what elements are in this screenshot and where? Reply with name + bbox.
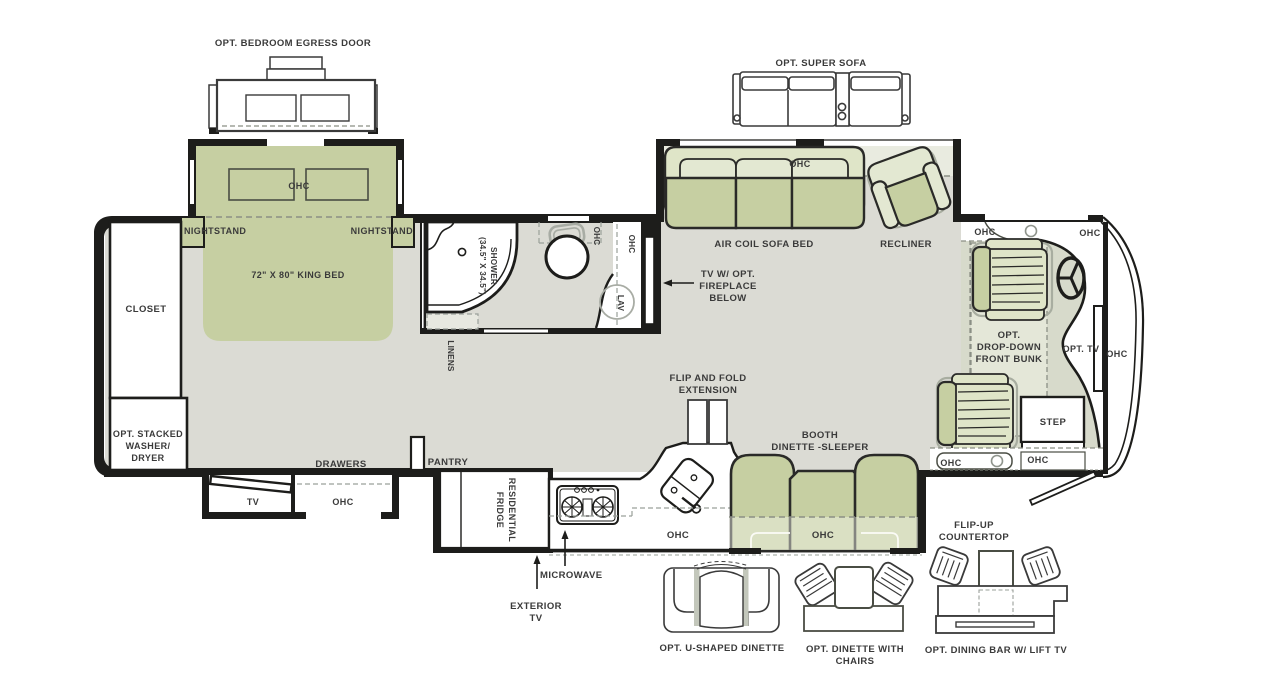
svg-text:FIREPLACE: FIREPLACE xyxy=(699,281,756,292)
svg-text:OPT. TV: OPT. TV xyxy=(1063,344,1100,354)
svg-text:AIR COIL SOFA BED: AIR COIL SOFA BED xyxy=(714,239,813,250)
svg-text:OHC: OHC xyxy=(1079,228,1100,238)
svg-text:DRAWERS: DRAWERS xyxy=(315,459,366,470)
svg-text:DINETTE -SLEEPER: DINETTE -SLEEPER xyxy=(771,442,868,453)
svg-text:OPT. STACKED: OPT. STACKED xyxy=(113,429,183,439)
svg-text:OPT. BEDROOM EGRESS DOOR: OPT. BEDROOM EGRESS DOOR xyxy=(215,38,371,49)
svg-text:OHC: OHC xyxy=(627,235,636,254)
svg-text:OPT.: OPT. xyxy=(998,330,1021,341)
svg-text:CLOSET: CLOSET xyxy=(126,304,167,315)
svg-text:OHC: OHC xyxy=(332,497,353,507)
svg-text:OHC: OHC xyxy=(592,227,601,246)
svg-text:DRYER: DRYER xyxy=(131,453,164,463)
svg-text:BELOW: BELOW xyxy=(709,293,746,304)
svg-text:EXTERIOR: EXTERIOR xyxy=(510,601,562,612)
svg-text:72" X 80" KING BED: 72" X 80" KING BED xyxy=(251,270,344,280)
svg-text:FLIP-UP: FLIP-UP xyxy=(954,520,994,531)
svg-text:NIGHTSTAND: NIGHTSTAND xyxy=(351,226,413,236)
svg-text:FRIDGE: FRIDGE xyxy=(495,492,505,528)
svg-text:LINENS: LINENS xyxy=(446,340,455,372)
svg-text:NIGHTSTAND: NIGHTSTAND xyxy=(184,226,246,236)
svg-text:OHC: OHC xyxy=(812,530,834,541)
svg-text:OHC: OHC xyxy=(667,530,689,541)
svg-text:PANTRY: PANTRY xyxy=(428,457,469,468)
svg-text:TV: TV xyxy=(530,613,543,624)
svg-text:FLIP AND FOLD: FLIP AND FOLD xyxy=(670,373,747,384)
svg-text:OPT. DINETTE WITH: OPT. DINETTE WITH xyxy=(806,644,904,655)
svg-text:TV: TV xyxy=(247,497,259,507)
svg-text:OPT. DINING BAR W/ LIFT TV: OPT. DINING BAR W/ LIFT TV xyxy=(925,645,1068,656)
svg-text:OHC: OHC xyxy=(974,227,995,237)
svg-text:EXTENSION: EXTENSION xyxy=(679,385,738,396)
svg-text:OPT. U-SHAPED DINETTE: OPT. U-SHAPED DINETTE xyxy=(659,643,784,654)
svg-text:TV W/ OPT.: TV W/ OPT. xyxy=(701,269,755,280)
svg-text:OHC: OHC xyxy=(288,181,309,191)
svg-text:WASHER/: WASHER/ xyxy=(126,441,171,451)
svg-text:STEP: STEP xyxy=(1040,417,1067,428)
svg-text:LAV: LAV xyxy=(616,295,625,312)
svg-text:CHAIRS: CHAIRS xyxy=(836,656,875,667)
svg-text:MICROWAVE: MICROWAVE xyxy=(540,570,603,581)
svg-text:SHOWER: SHOWER xyxy=(489,247,498,285)
svg-text:OHC: OHC xyxy=(1106,349,1127,359)
svg-text:RECLINER: RECLINER xyxy=(880,239,932,250)
svg-text:OHC: OHC xyxy=(789,159,810,169)
svg-text:OHC: OHC xyxy=(1027,455,1048,465)
svg-text:COUNTERTOP: COUNTERTOP xyxy=(939,532,1010,543)
svg-text:FRONT BUNK: FRONT BUNK xyxy=(976,354,1043,365)
svg-text:OHC: OHC xyxy=(940,458,961,468)
svg-text:OPT. SUPER SOFA: OPT. SUPER SOFA xyxy=(776,58,867,69)
svg-text:DROP-DOWN: DROP-DOWN xyxy=(977,342,1041,353)
svg-text:BOOTH: BOOTH xyxy=(802,430,838,441)
svg-text:RESIDENTIAL: RESIDENTIAL xyxy=(507,478,517,543)
svg-text:(34.5" X 34.5"): (34.5" X 34.5") xyxy=(478,237,487,295)
